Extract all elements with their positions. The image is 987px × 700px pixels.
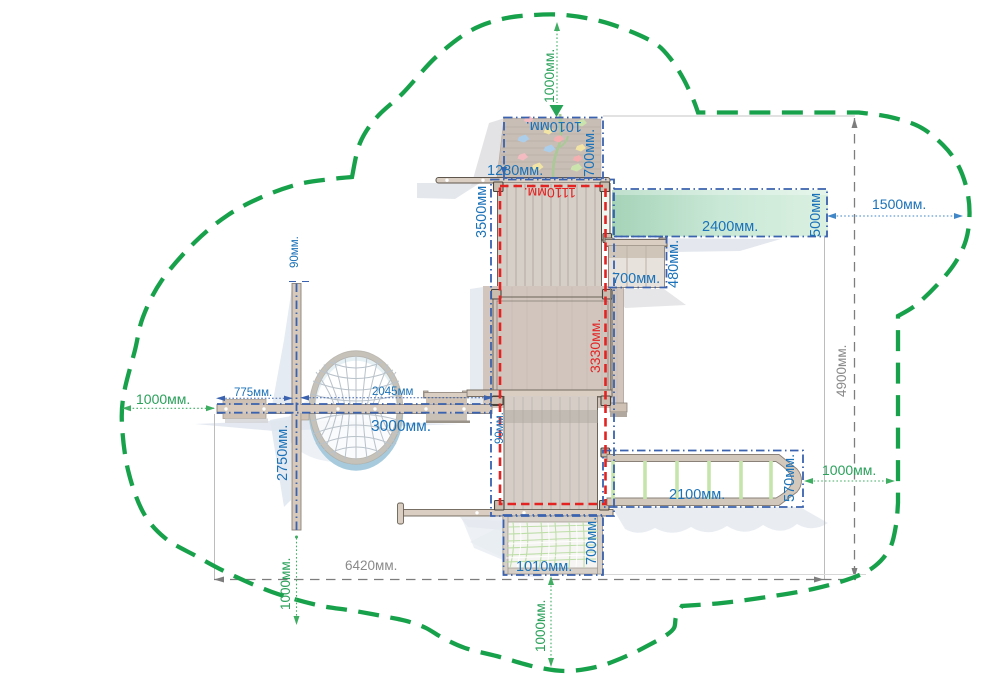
svg-text:1000мм.: 1000мм.: [822, 462, 876, 478]
svg-text:500мм: 500мм: [808, 193, 824, 237]
svg-text:3000мм.: 3000мм.: [371, 418, 431, 435]
svg-text:1000мм.: 1000мм.: [533, 600, 548, 652]
svg-text:1110мм.: 1110мм.: [524, 185, 576, 201]
svg-text:700мм.: 700мм.: [612, 271, 660, 287]
svg-text:4900мм.: 4900мм.: [834, 345, 849, 397]
svg-text:90мм.: 90мм.: [289, 236, 301, 268]
svg-text:2100мм.: 2100мм.: [669, 487, 725, 503]
svg-text:1010мм.: 1010мм.: [526, 118, 582, 134]
svg-text:1000мм.: 1000мм.: [136, 391, 190, 407]
svg-text:1000мм.: 1000мм.: [541, 49, 557, 103]
svg-text:3330мм.: 3330мм.: [587, 319, 603, 373]
svg-text:2045мм: 2045мм: [372, 386, 413, 398]
svg-text:2750мм.: 2750мм.: [275, 425, 291, 481]
svg-text:775мм.: 775мм.: [234, 387, 272, 399]
svg-text:480мм.: 480мм.: [666, 240, 682, 288]
svg-text:90мм.: 90мм.: [494, 412, 506, 444]
svg-text:3500мм: 3500мм: [474, 186, 490, 238]
svg-text:1010мм.: 1010мм.: [516, 559, 572, 575]
svg-text:2400мм.: 2400мм.: [702, 219, 758, 235]
svg-text:1000мм.: 1000мм.: [278, 558, 293, 610]
svg-text:700мм.: 700мм.: [584, 517, 600, 565]
svg-text:700мм.: 700мм.: [582, 129, 598, 177]
svg-text:570мм.: 570мм.: [782, 454, 798, 502]
svg-text:1500мм.: 1500мм.: [872, 196, 926, 212]
svg-text:6420мм.: 6420мм.: [345, 558, 397, 573]
svg-text:1280мм.: 1280мм.: [487, 163, 543, 179]
